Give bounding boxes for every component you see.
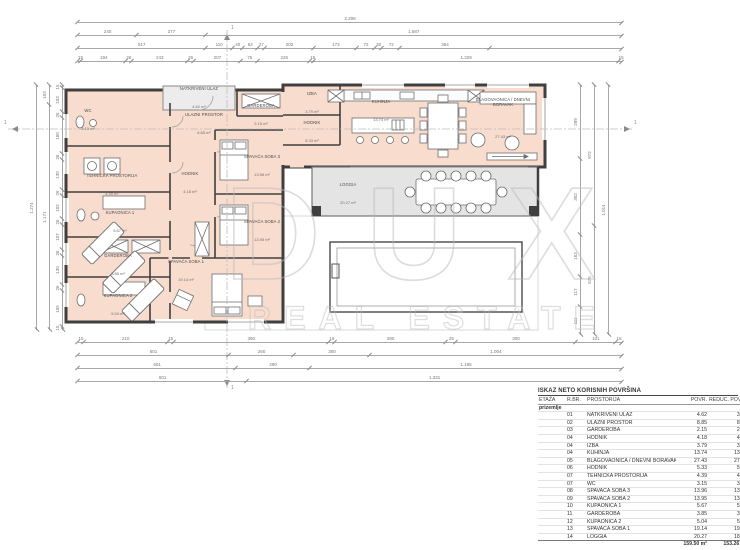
table-cell: 2.15 [676,427,708,435]
table-cell: 2.15 [708,427,740,435]
dim-segment: 601 [78,373,247,382]
table-row: 13SPAVAĆA SOBA 119.1419.14 [538,526,740,534]
dim-value: 390 [174,337,329,342]
dim-value: 103 [43,91,48,99]
dim-value: 15 [619,56,622,61]
table-cell [538,510,566,518]
area-table-body: prizemlje 01NATKRIVENI ULAZ4.623.4602ULA… [538,404,740,541]
table-cell: 14 [566,533,586,541]
dim-value: 300 [456,337,575,342]
dim-segment: 130 [54,256,63,286]
table-cell [538,412,566,420]
table-cell: 4.18 [676,434,708,442]
area-table-header-row: ETAŽA R.BR. PROSTORIJA POVR. REDUC. POVR… [538,396,740,404]
table-cell [538,488,566,496]
table-cell: ULAZNI PROSTOR [586,419,676,427]
dim-value: 280 [236,363,310,368]
dim-segment: 103 [54,88,63,112]
dim-segment: 15 [619,53,622,62]
table-cell: GARDEROBA [586,510,676,518]
dim-segment: 280 [335,334,447,343]
covered-entrance [163,86,235,110]
dim-value: 103 [56,96,61,104]
dim-value: 72 [382,43,400,48]
table-cell [538,495,566,503]
dim-chain-right-2: 872675 [586,85,595,335]
table-cell: 4.39 [676,472,708,480]
table-cell: IZBA [586,442,676,450]
dim-value: 300 [294,350,369,355]
dim-chain-bottom-2: 6012603001.004 [78,347,622,356]
table-cell: 5.04 [676,518,708,526]
dim-chain-left-3: 1510326160261302610226107261302615515 [54,85,63,330]
table-cell: 03 [566,427,586,435]
loggia-column [312,206,321,216]
dim-segment: 173 [314,40,357,49]
table-cell: 01 [566,412,586,420]
table-cell: 5.67 [708,503,740,511]
dim-value: 872 [588,152,593,160]
table-cell [538,472,566,480]
area-table: ISKAZ NETO KORISNIH POVRŠINA ETAŽA R.BR.… [538,388,738,548]
dim-chain-bottom-3: 6012801.185 [78,360,622,369]
table-cell [538,450,566,458]
dim-value: 40 [233,43,243,48]
totals-row: 159.50 m² 153.26 m² [538,541,740,548]
table-row: 03GARDEROBA2.152.15 [538,427,740,435]
dim-segment: 517 [78,40,206,49]
dim-segment: 1.687 [206,27,622,36]
dim-value: 194 [81,56,126,61]
dim-value: 1.687 [206,30,622,35]
dim-value: 517 [78,43,206,48]
dim-segment: 207 [194,53,242,62]
dim-segment: 1.331 [247,373,622,382]
dim-segment: 155 [54,291,63,326]
table-cell: 5.33 [676,465,708,473]
dim-value: 207 [194,56,242,61]
dim-value: 260 [229,350,294,355]
dim-chain-left-1: 1.274 [28,85,37,330]
table-cell [538,533,566,541]
dim-value: 111 [574,317,579,324]
table-cell: 12 [566,518,586,526]
table-cell: 27.43 [708,457,740,465]
table-cell: 3.85 [676,510,708,518]
table-row: 10KUPAONICA 15.675.67 [538,503,740,511]
section-marker-label: 1 [634,120,637,126]
dim-chain-right-3: 1.014 [600,85,609,335]
table-cell: 5.67 [676,503,708,511]
table-cell [538,434,566,442]
table-row: 07TEHNIČKA PROSTORIJA4.394.39 [538,472,740,480]
table-cell: 11 [566,510,586,518]
dim-segment: 1.171 [41,105,50,330]
dim-chain-right-1: 289302163117111 [572,85,581,335]
col-header-povr: POVR. [676,396,708,404]
table-cell [538,457,566,465]
table-cell: 13.95 [708,495,740,503]
table-cell: HODNIK [586,465,676,473]
dim-segment: 1.329 [314,53,619,62]
section-marker-label: 1 [231,385,234,391]
table-cell: 13 [566,526,586,534]
table-cell: 19.14 [708,526,740,534]
dim-segment: 1.004 [370,347,622,356]
table-cell: SPAVAĆA SOBA 1 [586,526,676,534]
table-cell: 08 [566,488,586,496]
dim-value: 364 [400,43,490,48]
table-cell: 4.18 [708,434,740,442]
table-row: 04IZBA3.793.79 [538,442,740,450]
dim-segment: 15 [616,334,622,343]
table-cell: NATKRIVENI ULAZ [586,412,676,420]
table-cell: GARDEROBA [586,427,676,435]
col-header-prostorija: PROSTORIJA [586,396,676,404]
table-cell: 8.85 [708,419,740,427]
dim-segment: 202 [265,40,315,49]
dim-segment: 364 [400,40,490,49]
floor-row: prizemlje [538,404,740,412]
table-cell: 3.85 [708,510,740,518]
dim-chain-bottom-1: 1521015390152802530010115 [78,334,622,343]
table-cell: KUHINJA [586,450,676,458]
table-cell: SPAVAĆA SOBA 2 [586,495,676,503]
dim-chain-left-2: 1031.171 [41,85,50,330]
table-cell: 04 [566,434,586,442]
dim-value: 101 [576,337,616,342]
dim-value: 675 [588,277,593,285]
table-cell: 13.74 [676,450,708,458]
total-povr: 159.50 m² [676,541,708,548]
dim-value: 107 [56,234,61,242]
total-reduc: 153.26 m² [708,541,740,548]
table-cell: 18.21 [708,533,740,541]
table-cell: 04 [566,442,586,450]
dim-segment: 300 [456,334,575,343]
dim-segment: 160 [54,118,63,155]
table-cell: 10 [566,503,586,511]
dim-value: 160 [56,132,61,140]
table-cell: 4.39 [708,472,740,480]
table-cell: 07 [566,472,586,480]
table-cell: 13.74 [708,450,740,458]
table-cell [538,518,566,526]
dim-chain-top-2: 2402771.687 [78,27,622,36]
dim-value: 62 [243,43,258,48]
table-row: 05BLAGOVAONICA / DNEVNI BORAVAK27.4327.4… [538,457,740,465]
table-cell: 20.27 [676,533,708,541]
dim-segment: 675 [586,226,595,335]
table-cell: 27.43 [676,457,708,465]
dim-value: 210 [84,337,168,342]
table-cell: WC [586,480,676,488]
table-cell: 13.96 [676,488,708,496]
table-cell: 05 [566,457,586,465]
col-header-reduc: REDUC. POVRŠINA [708,396,740,404]
dim-value: 289 [574,118,579,126]
pool [330,242,522,312]
dim-segment: 194 [81,53,126,62]
dim-value: 1.004 [370,350,622,355]
dim-segment: 2.298 [78,14,622,23]
dim-segment: 601 [78,347,229,356]
dim-value: 110 [206,43,233,48]
table-cell [538,503,566,511]
table-row: 04HODNIK4.184.18 [538,434,740,442]
dim-value: 302 [574,193,579,201]
dim-value: 240 [78,30,137,35]
dim-value: 117 [574,288,579,295]
table-row: 06HODNIK5.335.33 [538,465,740,473]
table-cell: KUPAONICA 2 [586,518,676,526]
dim-value: 601 [78,363,236,368]
table-cell: TEHNIČKA PROSTORIJA [586,472,676,480]
dim-value: 601 [78,350,229,355]
table-cell: 3.79 [708,442,740,450]
table-cell: 13.96 [708,488,740,496]
dim-chain-top-3: 517110406227202173723072364 [78,40,622,49]
dim-value: 155 [56,305,61,313]
table-cell: 04 [566,450,586,458]
table-row: 07WC3.153.15 [538,480,740,488]
dim-value: 280 [335,337,447,342]
table-row: 12KUPAONICA 25.045.04 [538,518,740,526]
dim-segment: 226 [258,53,310,62]
dim-segment: 111 [572,307,581,335]
dim-chain-top-1: 2.298 [78,14,622,23]
dim-segment: 210 [84,334,168,343]
dim-segment: 601 [78,360,236,369]
dim-segment: 280 [236,360,310,369]
dim-segment: 1.185 [310,360,622,369]
table-cell: 3.15 [676,480,708,488]
dim-value: 601 [78,376,247,381]
table-cell: LOGGIA [586,533,676,541]
dim-value: 243 [132,56,188,61]
dim-segment: 1.274 [28,85,37,330]
table-cell [538,419,566,427]
dim-segment [490,40,622,49]
table-row: 11GARDEROBA3.853.85 [538,510,740,518]
dim-segment: 872 [586,85,595,226]
table-cell: HODNIK [586,434,676,442]
table-cell: 4.62 [676,412,708,420]
table-cell [538,526,566,534]
table-cell [538,465,566,473]
dim-chain-bottom-4: 6011.331 [78,373,622,382]
floor-plan-sheet: { "drawing": { "watermark": { "line1": "… [0,0,740,550]
dim-segment: 1.014 [600,85,609,335]
dim-chain-top-4: 15194262432620775226151.32915 [78,53,622,62]
dim-segment: 240 [78,27,137,36]
dim-value: 15 [616,337,622,342]
dim-segment: 130 [54,160,63,190]
table-cell: 07 [566,480,586,488]
dim-segment: 163 [572,235,581,277]
dim-value: 130 [56,267,61,275]
table-row: 02ULAZNI PROSTOR8.858.85 [538,419,740,427]
bedroom-wing [66,90,283,322]
dim-value: 1.171 [43,212,48,223]
dim-segment: 117 [572,277,581,307]
table-cell: 06 [566,465,586,473]
table-cell: 5.04 [708,518,740,526]
dim-value: 75 [241,56,258,61]
table-cell: 5.33 [708,465,740,473]
table-cell: 8.85 [676,419,708,427]
dim-value: 163 [574,252,579,260]
table-row: 14LOGGIA20.2718.21 [538,533,740,541]
dim-value: 1.329 [314,56,619,61]
section-marker-label: 1 [4,120,7,126]
dim-segment: 15 [54,327,63,330]
table-row: 04KUHINJA13.7413.74 [538,450,740,458]
dim-value: 173 [314,43,357,48]
table-cell: 09 [566,495,586,503]
dim-value: 1.185 [310,363,622,368]
dim-value: 277 [137,30,205,35]
table-cell [538,480,566,488]
dim-value: 72 [357,43,375,48]
table-cell: KUPAONICA 1 [586,503,676,511]
loggia-column [529,206,538,216]
col-header-etaza: ETAŽA [538,396,566,404]
dim-value: 102 [56,204,61,212]
table-row: 01NATKRIVENI ULAZ4.623.46 [538,412,740,420]
dim-segment: 260 [229,347,294,356]
dim-segment: 110 [206,40,233,49]
table-cell: 3.46 [708,412,740,420]
dim-value: 15 [56,326,61,331]
area-table-title: ISKAZ NETO KORISNIH POVRŠINA [538,388,738,396]
dim-value: 130 [56,171,61,179]
dim-segment: 289 [572,85,581,159]
dim-value: 1.331 [247,376,622,381]
dim-segment: 243 [132,53,188,62]
table-cell: BLAGOVAONICA / DNEVNI BORAVAK [586,457,676,465]
dim-value: 1.014 [602,204,607,215]
dim-segment: 302 [572,159,581,236]
table-cell: 19.14 [676,526,708,534]
table-cell: 3.79 [676,442,708,450]
dim-segment: 300 [294,347,369,356]
floor-label: prizemlje [538,404,566,412]
table-cell: 02 [566,419,586,427]
dim-segment: 107 [54,225,63,249]
table-cell: 13.95 [676,495,708,503]
dim-segment: 390 [174,334,329,343]
dim-segment: 277 [137,27,205,36]
table-cell [538,442,566,450]
table-row: 08SPAVAĆA SOBA 313.9613.96 [538,488,740,496]
dim-value: 2.298 [78,17,622,22]
table-cell [538,427,566,435]
table-row: 09SPAVAĆA SOBA 213.9513.95 [538,495,740,503]
dim-value: 202 [265,43,315,48]
dim-value: 226 [258,56,310,61]
table-cell: SPAVAĆA SOBA 3 [586,488,676,496]
col-header-rbr: R.BR. [566,396,586,404]
dim-value: 1.274 [30,202,35,213]
table-cell: 3.15 [708,480,740,488]
